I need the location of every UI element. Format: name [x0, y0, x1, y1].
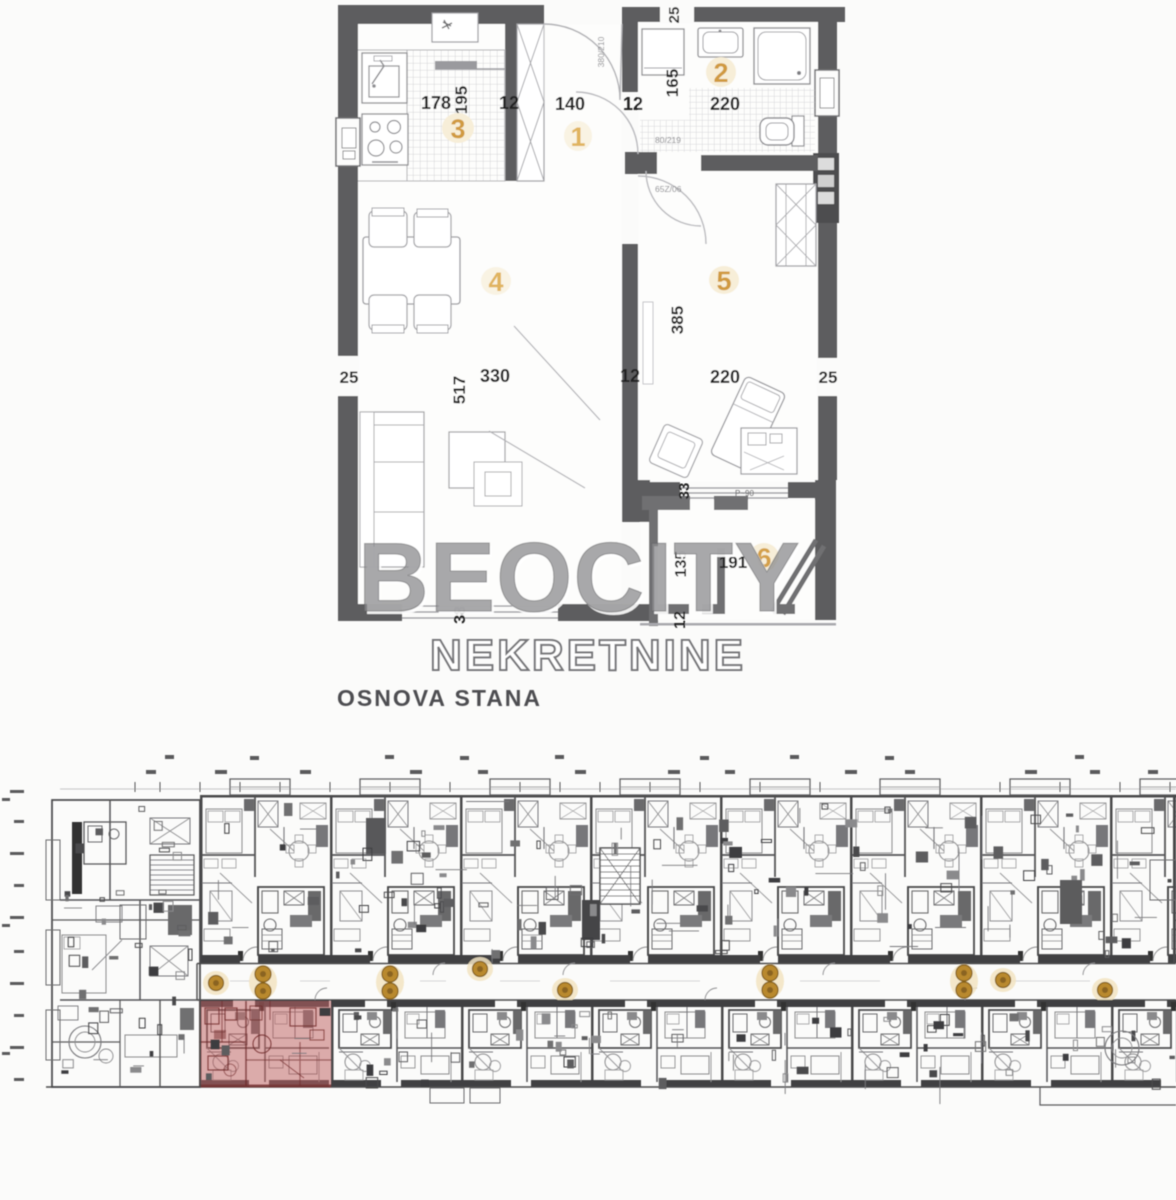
svg-text:NEKRETNINE: NEKRETNINE	[430, 631, 746, 680]
svg-text:2: 2	[713, 58, 728, 88]
svg-text:65Z/06: 65Z/06	[655, 184, 682, 194]
svg-text:5: 5	[716, 266, 731, 296]
svg-text:12: 12	[499, 93, 519, 113]
svg-text:BEOCITY: BEOCITY	[358, 522, 801, 632]
svg-text:165: 165	[663, 69, 682, 97]
svg-text:140: 140	[555, 94, 585, 114]
svg-text:33: 33	[676, 483, 693, 500]
svg-text:330: 330	[480, 366, 510, 386]
svg-text:3: 3	[450, 114, 465, 144]
svg-text:OSNOVA STANA: OSNOVA STANA	[337, 685, 542, 711]
svg-text:25: 25	[666, 7, 683, 24]
svg-text:195: 195	[452, 86, 471, 114]
svg-text:178: 178	[421, 93, 451, 113]
svg-text:517: 517	[450, 376, 469, 404]
svg-text:25: 25	[340, 368, 359, 387]
svg-text:1: 1	[570, 122, 585, 152]
svg-text:380/210: 380/210	[596, 36, 606, 67]
svg-text:385: 385	[668, 306, 687, 334]
svg-text:220: 220	[710, 367, 740, 387]
svg-text:80/219: 80/219	[655, 135, 681, 145]
svg-text:12: 12	[623, 94, 643, 114]
svg-text:25: 25	[819, 368, 838, 387]
svg-text:12: 12	[620, 366, 640, 386]
svg-text:220: 220	[710, 94, 740, 114]
svg-text:4: 4	[488, 267, 503, 297]
